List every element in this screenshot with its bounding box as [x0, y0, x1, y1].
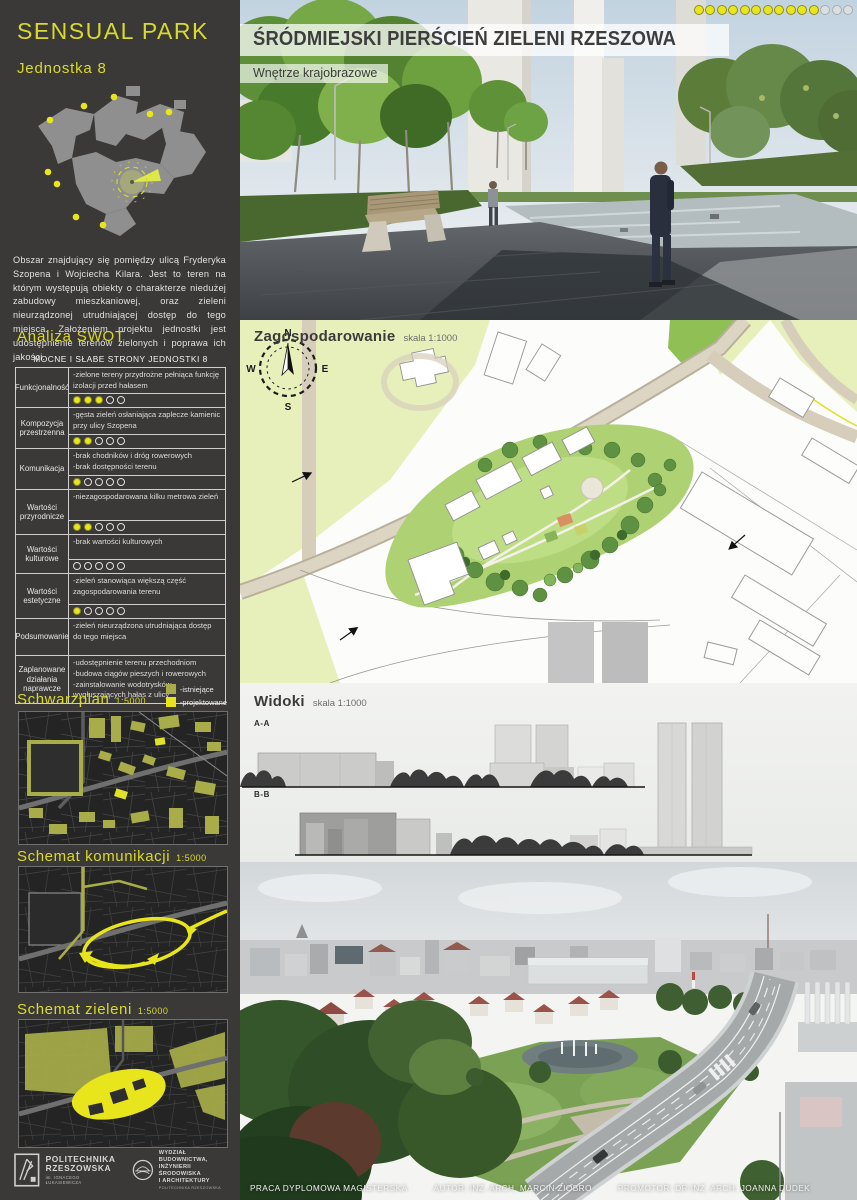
schwarzplan-heading: Schwarzplan1:5000 [17, 691, 146, 709]
swot-heading: Analiza SWOT [17, 328, 125, 345]
compass-s: S [285, 402, 292, 413]
swot-row-text: -zieleń nieurządzona utrudniająca dostęp… [69, 619, 225, 655]
work-type: PRACA DYPLOMOWA MAGISTERSKA [250, 1183, 408, 1193]
footer-caption: PRACA DYPLOMOWA MAGISTERSKA AUTOR: INŻ. … [250, 1183, 810, 1193]
faculty-logo: WYDZIAŁ BUDOWNICTWA, INŻYNIERII ŚRODOWIS… [132, 1150, 228, 1190]
swot-row-label: Wartości kulturowe [16, 535, 69, 573]
legend-item-existing: -istniejące [166, 684, 227, 694]
university-subname: im. IGNACEGO ŁUKASIEWICZA [46, 1175, 116, 1185]
author-credit: AUTOR: INŻ. ARCH. MARCIN ZIOBRO [434, 1183, 592, 1193]
rating-dots [69, 559, 225, 573]
section-a-drawing [240, 725, 645, 787]
university-name: POLITECHNIKA RZESZOWSKA [46, 1155, 116, 1174]
swot-row-estetyczne: Wartości estetyczne -zieleń stanowiąca w… [16, 574, 225, 619]
zielen-scale: 1:5000 [138, 1006, 169, 1016]
section-a-label: A-A [254, 719, 270, 728]
swot-row-label: Podsumowanie [16, 619, 69, 655]
site-plan-svg: N E S W [240, 320, 857, 683]
designed-swatch-icon [166, 697, 176, 707]
swot-row-komunikacja: Komunikacja -brak chodników i dróg rower… [16, 449, 225, 490]
minimap-graphic [26, 84, 218, 244]
swot-row-text: -zieleń stanowiąca większą część zagospo… [69, 574, 225, 604]
politechnika-logo-icon [14, 1153, 40, 1187]
institution-logos: POLITECHNIKA RZESZOWSKA im. IGNACEGO ŁUK… [14, 1150, 228, 1190]
site-plan-section: Zagospodarowanieskala 1:1000 [240, 320, 857, 683]
komunikacja-map [18, 866, 228, 993]
faculty-name: WYDZIAŁ BUDOWNICTWA, INŻYNIERII ŚRODOWIS… [159, 1150, 228, 1185]
map-legend: -istniejące -projektowane [166, 684, 227, 710]
swot-row-funkcjonalnosc: Funkcjonalność -zielone tereny przydrożn… [16, 368, 225, 408]
views-heading: Widokiskala 1:1000 [254, 693, 367, 711]
swot-row-text: -niezagospodarowana kilku metrowa zieleń [69, 490, 225, 520]
thesis-poster: SENSUAL PARK Jednostka 8 [0, 0, 857, 1200]
swot-row-label: Komunikacja [16, 449, 69, 489]
aerial-render-svg [240, 862, 857, 1200]
rating-dots [69, 604, 225, 618]
swot-row-label: Kompozycja przestrzenna [16, 408, 69, 448]
swot-row-text: -brak wartości kulturowych [69, 535, 225, 559]
plan-title: Zagospodarowanie [254, 328, 395, 345]
views-section: Widokiskala 1:1000 A-A B-B [240, 683, 857, 862]
legend-item-designed: -projektowane [166, 697, 227, 707]
swot-row-text: -brak chodników i dróg rowerowych -brak … [69, 449, 225, 475]
plan-heading: Zagospodarowanieskala 1:1000 [254, 328, 457, 346]
promoter-credit: PROMOTOR: DR INŻ. ARCH. JOANNA DUDEK [618, 1183, 810, 1193]
swot-row-przyrodnicze: Wartości przyrodnicze -niezagospodarowan… [16, 490, 225, 535]
schwarzplan-scale: 1:5000 [115, 696, 146, 706]
compass-w: W [246, 364, 256, 375]
schwarzplan-map [18, 711, 228, 845]
zielen-title: Schemat zieleni [17, 1001, 132, 1018]
existing-swatch-icon [166, 684, 176, 694]
swot-row-kompozycja: Kompozycja przestrzenna -gęsta zieleń os… [16, 408, 225, 449]
swot-row-label: Funkcjonalność [16, 368, 69, 407]
legend-label: -istniejące [180, 685, 214, 694]
location-minimap [26, 84, 218, 244]
section-b-label: B-B [254, 790, 270, 799]
swot-row-text: -zielone tereny przydrożne pełniąca funk… [69, 368, 225, 393]
swot-table: MOCNE I SŁABE STRONY JEDNOSTKI 8 Funkcjo… [15, 354, 226, 704]
project-title: SENSUAL PARK [17, 18, 209, 45]
plan-scale: skala 1:1000 [403, 333, 457, 344]
zielen-map [18, 1019, 228, 1148]
faculty-logo-icon [132, 1158, 154, 1182]
swot-row-label: Wartości estetyczne [16, 574, 69, 618]
swot-grid: Funkcjonalność -zielone tereny przydrożn… [15, 367, 226, 704]
rating-dots [69, 434, 225, 448]
poster-main-title: ŚRÓDMIEJSKI PIERŚCIEŃ ZIELENI RZESZOWA [253, 28, 676, 51]
unit-description: Obszar znajdujący się pomiędzy ulicą Fry… [13, 254, 226, 364]
progress-dots [694, 5, 854, 15]
aerial-visualization: PRACA DYPLOMOWA MAGISTERSKA AUTOR: INŻ. … [240, 862, 857, 1200]
komunikacja-heading: Schemat komunikacji1:5000 [17, 848, 207, 866]
rating-dots [69, 520, 225, 534]
swot-row-label: Wartości przyrodnicze [16, 490, 69, 534]
komunikacja-scale: 1:5000 [176, 853, 207, 863]
poster-title-band: ŚRÓDMIEJSKI PIERŚCIEŃ ZIELENI RZESZOWA [240, 24, 729, 56]
swot-row-podsumowanie: Podsumowanie -zieleń nieurządzona utrudn… [16, 619, 225, 656]
views-title: Widoki [254, 693, 305, 710]
views-scale: skala 1:1000 [313, 698, 367, 709]
poster-subtitle-band: Wnętrze krajobrazowe [240, 64, 388, 83]
legend-label: -projektowane [180, 698, 227, 707]
university-logo: POLITECHNIKA RZESZOWSKA im. IGNACEGO ŁUK… [14, 1153, 116, 1187]
sidebar: SENSUAL PARK Jednostka 8 [0, 0, 240, 1200]
rating-dots [69, 393, 225, 407]
swot-row-kulturowe: Wartości kulturowe -brak wartości kultur… [16, 535, 225, 574]
hero-visualization: ŚRÓDMIEJSKI PIERŚCIEŃ ZIELENI RZESZOWA W… [240, 0, 857, 320]
unit-subtitle: Jednostka 8 [17, 60, 107, 77]
compass-e: E [322, 364, 329, 375]
komunikacja-title: Schemat komunikacji [17, 848, 170, 865]
zielen-heading: Schemat zieleni1:5000 [17, 1001, 168, 1019]
swot-row-text: -gęsta zieleń osłaniająca zaplecze kamie… [69, 408, 225, 434]
rating-dots [69, 475, 225, 489]
faculty-subname: POLITECHNIKA RZESZOWSKA [159, 1186, 228, 1190]
main-content: ŚRÓDMIEJSKI PIERŚCIEŃ ZIELENI RZESZOWA W… [240, 0, 857, 1200]
schwarzplan-title: Schwarzplan [17, 691, 109, 708]
swot-table-title: MOCNE I SŁABE STRONY JEDNOSTKI 8 [15, 354, 226, 364]
